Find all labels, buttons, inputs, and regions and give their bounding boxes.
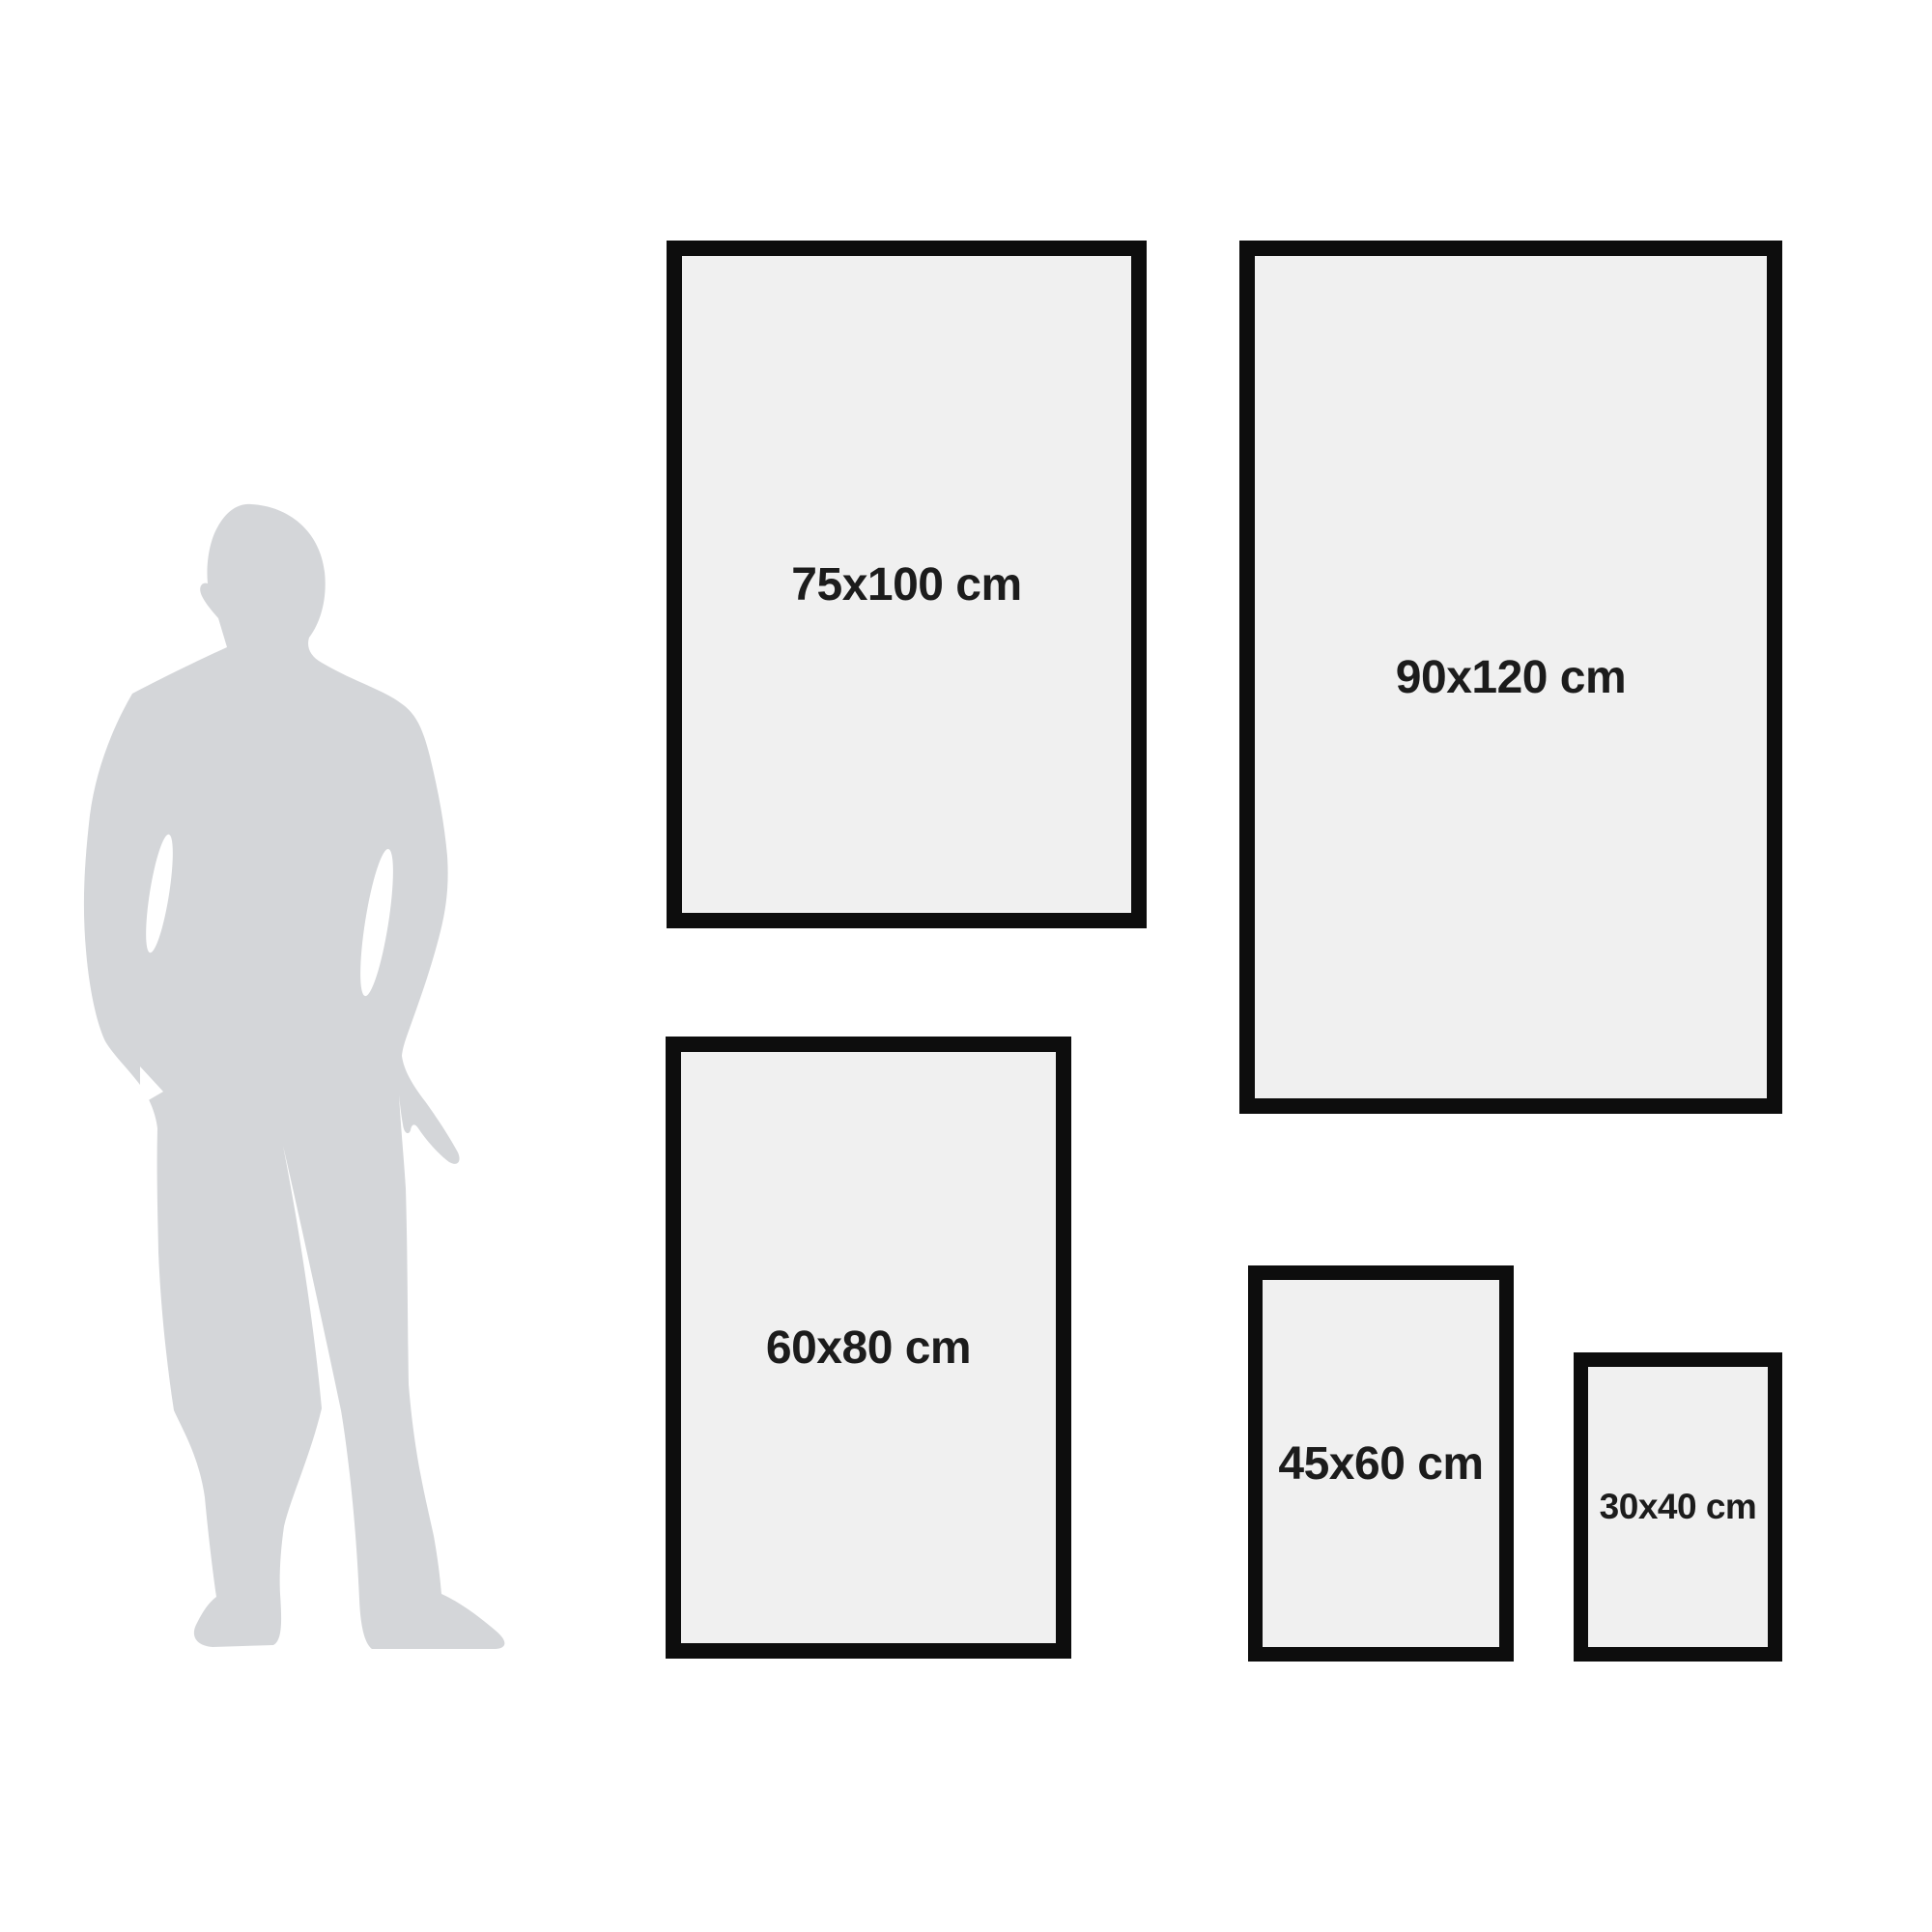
person-silhouette bbox=[82, 491, 507, 1650]
frame-30x40: 30x40 cm bbox=[1574, 1352, 1782, 1662]
frame-size-label-75x100: 75x100 cm bbox=[791, 558, 1021, 611]
frame-45x60: 45x60 cm bbox=[1248, 1265, 1514, 1662]
frame-size-label-30x40: 30x40 cm bbox=[1600, 1487, 1757, 1527]
frame-size-label-60x80: 60x80 cm bbox=[766, 1321, 971, 1375]
frame-90x120: 90x120 cm bbox=[1239, 241, 1782, 1114]
frame-75x100: 75x100 cm bbox=[667, 241, 1147, 928]
frame-size-label-90x120: 90x120 cm bbox=[1396, 651, 1626, 704]
frame-60x80: 60x80 cm bbox=[666, 1037, 1071, 1659]
poster-size-comparison-diagram: 75x100 cm 90x120 cm 60x80 cm 45x60 cm 30… bbox=[0, 0, 1932, 1932]
frame-size-label-45x60: 45x60 cm bbox=[1278, 1437, 1483, 1491]
